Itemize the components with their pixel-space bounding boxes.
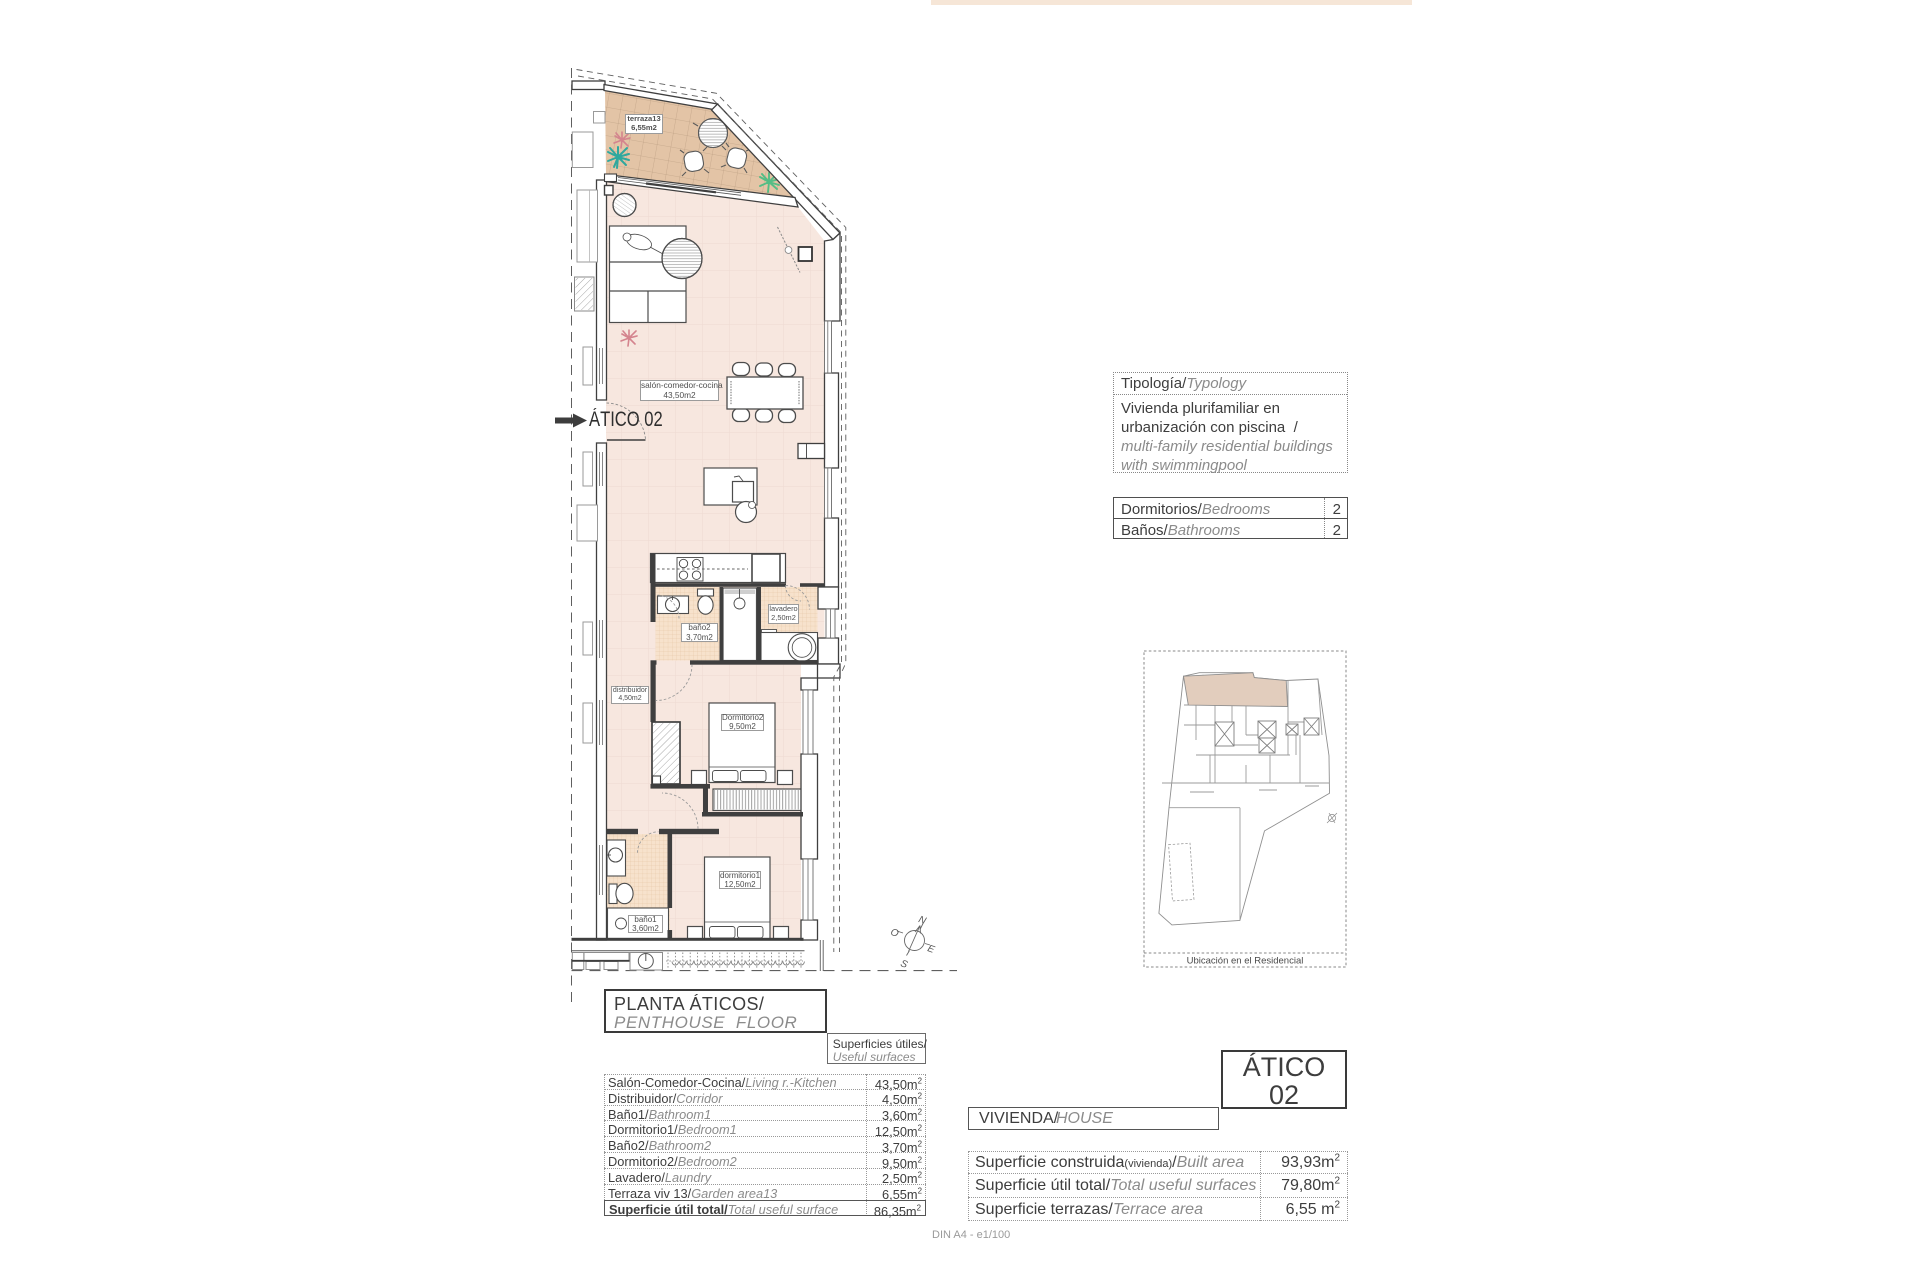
- svg-text:E: E: [926, 943, 936, 956]
- svg-text:O: O: [889, 927, 900, 940]
- svg-text:Ubicación en el Residencial: Ubicación en el Residencial: [1187, 956, 1304, 967]
- svg-text:N: N: [917, 914, 928, 927]
- svg-text:S: S: [899, 958, 909, 971]
